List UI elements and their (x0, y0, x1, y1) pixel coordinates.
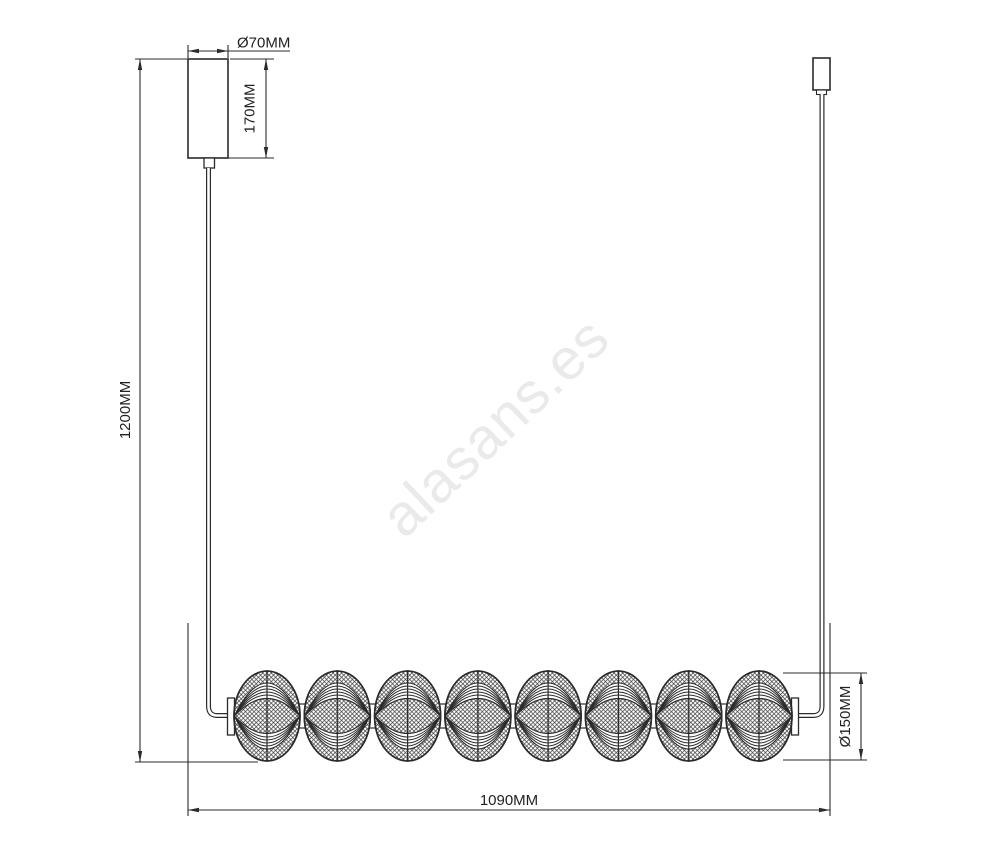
arrowhead (859, 673, 863, 684)
ceiling-fitting-right (813, 58, 830, 95)
technical-drawing-page: alasans.es (0, 0, 995, 848)
crystal-sphere (234, 670, 300, 762)
right-suspension-wire (798, 94, 822, 716)
fitting-flange (817, 90, 827, 95)
suspension-drop-label: 1200MM (117, 381, 134, 439)
arrowhead (859, 749, 863, 760)
crystal-sphere (375, 670, 441, 762)
ceiling-canopy (188, 59, 228, 168)
sphere-diameter-label: Ø150MM (837, 686, 854, 748)
crystal-sphere (656, 670, 722, 762)
arrowhead (819, 808, 830, 812)
crystal-sphere (445, 670, 511, 762)
arrowhead (138, 751, 142, 762)
canopy-height-label: 170MM (242, 83, 259, 133)
arrowhead (188, 49, 199, 53)
watermark: alasans.es (369, 305, 622, 550)
arrowhead (188, 808, 199, 812)
arrowhead (264, 59, 268, 70)
arrowhead (217, 49, 228, 53)
arrowhead (138, 59, 142, 70)
crystal-sphere (585, 670, 651, 762)
canopy-stem (204, 158, 215, 168)
crystal-sphere (515, 670, 581, 762)
pendant-lamp-drawing: alasans.es (0, 0, 995, 848)
arrowhead (264, 147, 268, 158)
crystal-sphere (304, 670, 370, 762)
fixture-length-label: 1090MM (480, 792, 538, 809)
sphere-row (228, 670, 799, 762)
crystal-sphere (726, 670, 792, 762)
left-suspension-wire (209, 168, 230, 716)
dimension-canopy-diameter: Ø70MM (188, 35, 290, 59)
canopy-diameter-label: Ø70MM (237, 35, 290, 52)
